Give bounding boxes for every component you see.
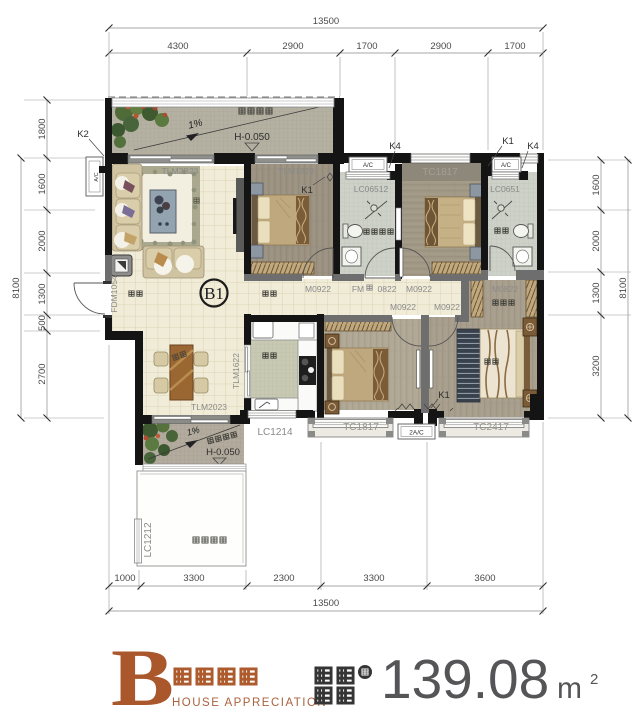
svg-text:B: B xyxy=(111,632,174,708)
svg-text:TLM1622: TLM1622 xyxy=(231,353,241,389)
svg-text:K2: K2 xyxy=(77,129,89,140)
svg-text:TLM2B23: TLM2B23 xyxy=(162,166,199,176)
svg-text:TC1817: TC1817 xyxy=(343,422,379,433)
svg-text:2000: 2000 xyxy=(591,230,602,251)
svg-text:1600: 1600 xyxy=(37,173,48,194)
svg-text:8100: 8100 xyxy=(11,277,22,298)
svg-text:1700: 1700 xyxy=(504,41,525,52)
svg-text:K1: K1 xyxy=(438,390,450,401)
svg-text:B1: B1 xyxy=(204,284,224,303)
svg-text:A/C: A/C xyxy=(501,163,512,169)
svg-text:M0922: M0922 xyxy=(390,302,416,312)
svg-text:2A/C: 2A/C xyxy=(409,430,424,437)
svg-text:500: 500 xyxy=(37,315,48,331)
svg-text:2700: 2700 xyxy=(37,363,48,384)
svg-text:2300: 2300 xyxy=(273,573,294,584)
svg-text:1800: 1800 xyxy=(37,118,48,139)
svg-text:2000: 2000 xyxy=(37,230,48,251)
svg-text:M0922: M0922 xyxy=(406,284,432,294)
svg-text:1300: 1300 xyxy=(37,283,48,304)
svg-text:LC1214: LC1214 xyxy=(257,427,292,438)
svg-text:4300: 4300 xyxy=(167,41,188,52)
svg-text:A/C: A/C xyxy=(94,172,100,181)
svg-text:LC06512: LC06512 xyxy=(354,184,389,194)
svg-text:M0922: M0922 xyxy=(305,284,331,294)
svg-text:1000: 1000 xyxy=(114,573,135,584)
svg-text:H-0.050: H-0.050 xyxy=(206,447,240,458)
svg-text:TLM1823: TLM1823 xyxy=(278,166,314,176)
svg-text:2: 2 xyxy=(590,671,598,688)
svg-text:3200: 3200 xyxy=(591,355,602,376)
svg-text:1300: 1300 xyxy=(591,282,602,303)
svg-text:8100: 8100 xyxy=(618,277,629,298)
svg-text:K4: K4 xyxy=(389,141,401,152)
svg-text:A/C: A/C xyxy=(363,163,374,169)
svg-text:FM: FM xyxy=(352,284,364,294)
svg-text:K4: K4 xyxy=(527,141,539,152)
svg-text:H-0.050: H-0.050 xyxy=(234,132,270,143)
svg-text:LC0651: LC0651 xyxy=(490,184,520,194)
svg-text:2900: 2900 xyxy=(282,41,303,52)
svg-text:0822: 0822 xyxy=(378,284,397,294)
svg-text:3300: 3300 xyxy=(363,573,384,584)
svg-text:M0822: M0822 xyxy=(492,284,518,294)
svg-text:13500: 13500 xyxy=(313,16,339,27)
svg-text:LC1212: LC1212 xyxy=(143,522,154,557)
svg-text:TLM2023: TLM2023 xyxy=(191,402,227,412)
svg-text:M0922: M0922 xyxy=(434,302,460,312)
svg-text:1600: 1600 xyxy=(591,174,602,195)
svg-text:1700: 1700 xyxy=(356,41,377,52)
svg-text:TC2417: TC2417 xyxy=(473,422,509,433)
svg-text:139.08: 139.08 xyxy=(381,648,549,708)
svg-text:HOUSE APPRECIATION: HOUSE APPRECIATION xyxy=(172,697,327,708)
svg-text:3300: 3300 xyxy=(183,573,204,584)
svg-text:m: m xyxy=(557,672,582,705)
svg-text:TC1817: TC1817 xyxy=(422,167,458,178)
svg-text:K1: K1 xyxy=(301,185,313,196)
svg-text:2900: 2900 xyxy=(430,41,451,52)
svg-text:3600: 3600 xyxy=(474,573,495,584)
svg-text:13500: 13500 xyxy=(313,598,339,609)
svg-text:K1: K1 xyxy=(502,136,514,147)
svg-text:FDM1054: FDM1054 xyxy=(109,275,119,313)
